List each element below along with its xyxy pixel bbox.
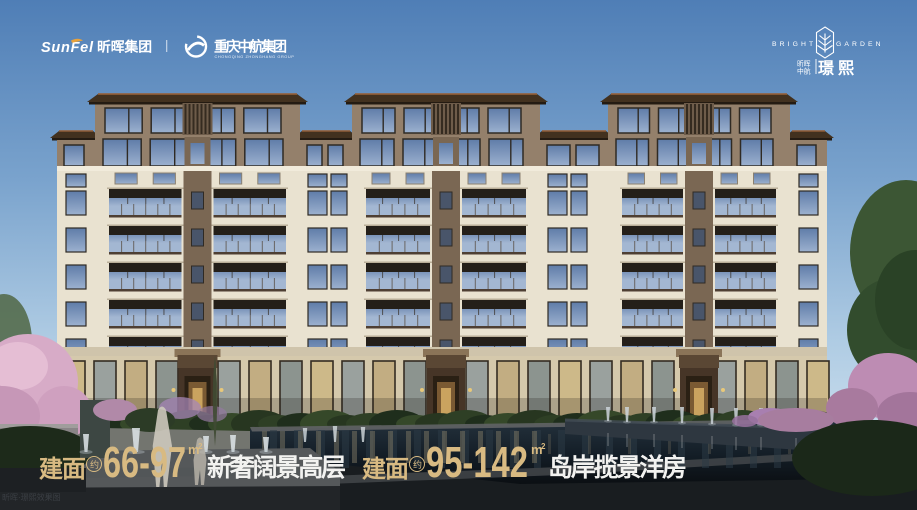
svg-text:GARDEN: GARDEN bbox=[836, 41, 884, 48]
svg-text:昕晖·璟熙效果图: 昕晖·璟熙效果图 bbox=[2, 492, 61, 502]
svg-text:约: 约 bbox=[413, 459, 422, 470]
svg-text:CHONGQING ZHONGHANG GROUP: CHONGQING ZHONGHANG GROUP bbox=[215, 54, 295, 59]
svg-text:建面: 建面 bbox=[39, 456, 86, 483]
svg-text:昕晖: 昕晖 bbox=[797, 59, 811, 68]
svg-text:岛岸揽景洋房: 岛岸揽景洋房 bbox=[548, 453, 687, 482]
svg-text:2: 2 bbox=[198, 442, 203, 451]
svg-text:95-142: 95-142 bbox=[426, 438, 528, 487]
svg-text:昕晖集团: 昕晖集团 bbox=[97, 39, 152, 55]
svg-text:新奢阔景高层: 新奢阔景高层 bbox=[207, 453, 346, 482]
svg-text:重庆中航集团: 重庆中航集团 bbox=[214, 39, 287, 55]
svg-text:66-97: 66-97 bbox=[103, 438, 186, 487]
svg-text:BRIGHT: BRIGHT bbox=[772, 41, 816, 48]
svg-text:中航: 中航 bbox=[797, 67, 811, 76]
svg-text:SunFel: SunFel bbox=[41, 40, 94, 56]
svg-text:2: 2 bbox=[541, 442, 546, 451]
svg-text:璟熙: 璟熙 bbox=[818, 60, 858, 78]
svg-text:建面: 建面 bbox=[362, 456, 409, 483]
svg-text:约: 约 bbox=[90, 459, 99, 470]
